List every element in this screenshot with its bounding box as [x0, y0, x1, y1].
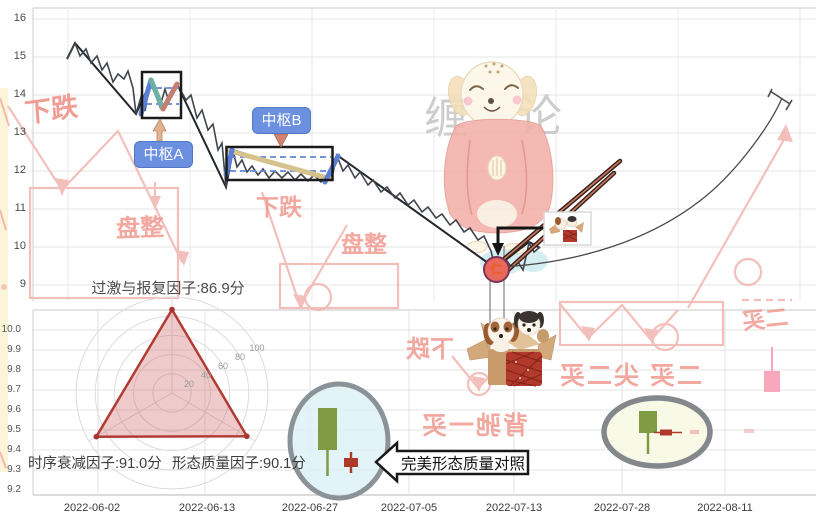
bot-ytick-99: 9.9 — [0, 344, 21, 355]
top-ytick-14: 14 — [0, 88, 26, 100]
radar-polygon — [96, 310, 247, 437]
pivot-b-box — [226, 147, 338, 182]
callout-text: 完美形态质量对照 — [398, 452, 528, 474]
bot-ytick-93: 9.3 — [0, 464, 21, 475]
pivot-a-box — [141, 72, 181, 118]
pattern-ellipse-mid — [290, 384, 388, 498]
pivot-b-callout-arrow-icon — [274, 134, 288, 147]
xtick-date-1: 2022-06-02 — [52, 502, 132, 514]
top-ytick-10: 10 — [0, 240, 26, 252]
faint-candle-2 — [744, 429, 754, 433]
bot-ytick-98: 9.8 — [0, 364, 21, 375]
xtick-date-4: 2022-07-05 — [369, 502, 449, 514]
bot-ytick-92: 9.2 — [0, 484, 21, 495]
top-ytick-12: 12 — [0, 164, 26, 176]
pivot-a-label: 中枢A — [134, 141, 193, 168]
puppies-sticker-small — [544, 212, 591, 245]
xtick-date-6: 2022-07-28 — [582, 502, 662, 514]
xtick-date-2: 2022-06-13 — [167, 502, 247, 514]
radar-title: 过激与报复因子:86.9分 — [68, 277, 268, 298]
radar-tick-40: 40 — [201, 370, 211, 380]
xtick-date-3: 2022-06-27 — [270, 502, 350, 514]
bot-ytick-100: 10.0 — [0, 324, 21, 335]
top-ytick-15: 15 — [0, 50, 26, 62]
xtick-date-7: 2022-08-11 — [685, 502, 765, 514]
factor-label-left: 时序衰减因子:91.0分 — [28, 452, 162, 473]
xtick-date-5: 2022-07-13 — [474, 502, 554, 514]
bot-ytick-94: 9.4 — [0, 444, 21, 455]
top-ytick-13: 13 — [0, 126, 26, 138]
radar-tick-60: 60 — [218, 361, 228, 371]
factor-label-right: 形态质量因子:90.1分 — [172, 452, 306, 473]
chart-screenshot: 下跌 盘整 下跌 盘整 下跌 背驰一买 二买 尖二买 二买 缠 论 — [0, 0, 822, 520]
pink-candle — [764, 347, 780, 392]
pivot-b-label: 中枢B — [252, 107, 311, 134]
pivot-a-callout-arrow-icon — [153, 119, 166, 141]
buy-point-marker: 仁 — [483, 256, 510, 283]
faint-candle-1 — [690, 430, 699, 434]
radar-tick-100: 100 — [249, 343, 264, 353]
top-ytick-11: 11 — [0, 202, 26, 214]
bot-ytick-96: 9.6 — [0, 404, 21, 415]
bot-ytick-95: 9.5 — [0, 424, 21, 435]
puppies-sticker-large — [467, 311, 556, 386]
chart-artwork-layer — [0, 0, 822, 520]
bot-ytick-97: 9.7 — [0, 384, 21, 395]
top-ytick-16: 16 — [0, 12, 26, 24]
radar-tick-80: 80 — [235, 352, 245, 362]
top-ytick-9: 9 — [0, 278, 26, 290]
radar-tick-20: 20 — [184, 379, 194, 389]
